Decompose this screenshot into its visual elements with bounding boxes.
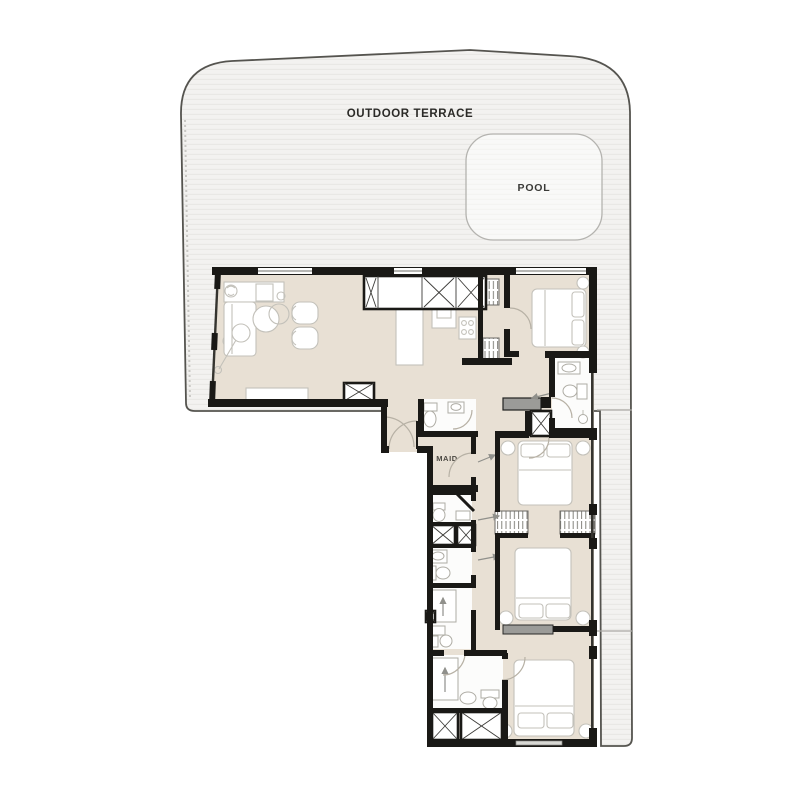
- living-closet: [344, 383, 374, 401]
- nightstand: [499, 611, 513, 625]
- wardrobe-closet-pair: [431, 525, 475, 545]
- hall-closet: [531, 411, 551, 436]
- bottom-closets: [432, 712, 502, 740]
- pool: POOL: [466, 134, 602, 240]
- nightstand-2: [576, 611, 590, 625]
- bedroom-1: [532, 277, 589, 358]
- bottom-window: [516, 741, 562, 745]
- nightstand: [577, 277, 589, 289]
- sink: [456, 511, 470, 520]
- floor-plan-page: OUTDOOR TERRACE POOL: [0, 0, 800, 800]
- sink-bowl: [451, 404, 461, 411]
- threshold-cabinet: [503, 625, 553, 634]
- sink: [432, 626, 445, 635]
- bed-1-pillow: [572, 292, 584, 317]
- bed-3-pillow: [519, 604, 543, 618]
- desk-monitor: [256, 284, 273, 301]
- armchair: [292, 302, 318, 324]
- toilet: [433, 509, 445, 522]
- pool-label: POOL: [518, 182, 551, 194]
- entry-closets: [364, 276, 486, 309]
- bed-4-pillow: [518, 713, 544, 728]
- toilet: [440, 635, 452, 647]
- sofa: [224, 302, 256, 356]
- coffee-table: [253, 306, 279, 332]
- nightstand-2: [576, 441, 590, 455]
- bed-2-pillow-2: [547, 444, 570, 457]
- bed-1-pillow-2: [572, 320, 584, 345]
- floor-plan-canvas: OUTDOOR TERRACE POOL: [0, 0, 800, 800]
- toilet: [483, 697, 497, 709]
- bed-3-pillow-2: [546, 604, 570, 618]
- outdoor-terrace-label: OUTDOOR TERRACE: [347, 108, 474, 120]
- nightstand: [501, 441, 515, 455]
- toilet: [424, 411, 436, 427]
- sink: [558, 362, 580, 374]
- toilet: [436, 567, 450, 579]
- stove: [459, 317, 476, 339]
- armchair-2: [292, 327, 318, 349]
- bed-4-pillow-2: [547, 713, 573, 728]
- toilet-tank: [424, 403, 437, 411]
- top-windows: [258, 268, 586, 274]
- vanity-bowl: [432, 552, 444, 560]
- sink: [460, 692, 476, 704]
